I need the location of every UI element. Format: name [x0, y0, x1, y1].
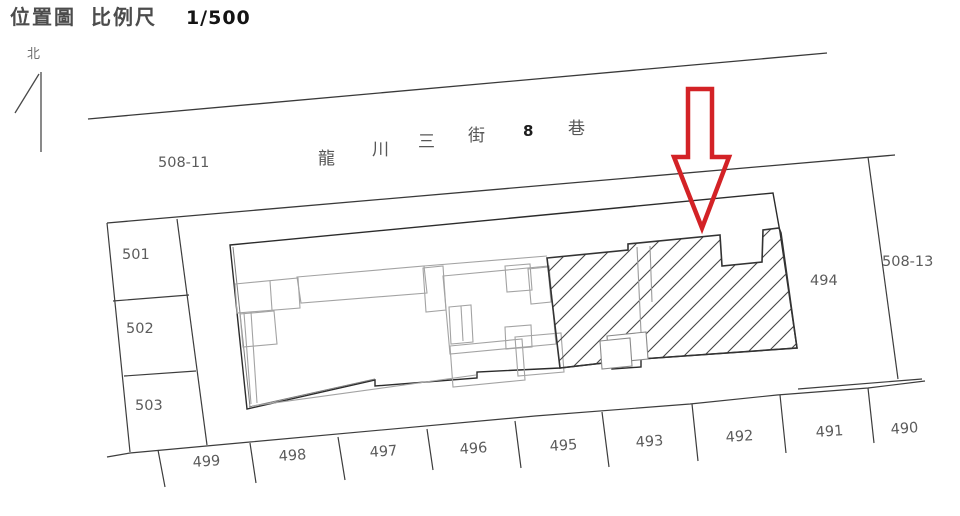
parcel-label-498: 498: [278, 447, 307, 465]
building-band: [297, 266, 427, 303]
parcel-label-490: 490: [890, 420, 919, 438]
building-line: [461, 306, 463, 341]
parcel-label-501: 501: [122, 247, 150, 263]
parcel-label-491: 491: [815, 423, 844, 441]
street-name: 龍 川 三 街 8 巷 508-11: [158, 119, 585, 171]
street-name-char-4: 街: [468, 126, 485, 146]
location-map: 位置圖 比例尺 1/500 北 龍 川 三 街 8 巷 508-11: [0, 0, 960, 516]
parcel-labels: 501 502 503 494 508-13 499 498 497 496 4…: [122, 247, 933, 471]
parcel-label-508-13: 508-13: [882, 254, 933, 270]
parcel-label-492: 492: [725, 428, 754, 446]
street-name-char-1: 龍: [318, 149, 335, 169]
parcel-label-495: 495: [549, 437, 578, 455]
street-top-line: [88, 53, 827, 119]
site-plan-canvas: 北 龍 川 三 街 8 巷 508-11: [0, 0, 960, 516]
parcel-label-503: 503: [135, 398, 163, 414]
building-rect: [600, 338, 632, 369]
highlighted-parcel-hatch: [547, 228, 797, 368]
left-column-separator: [177, 219, 207, 445]
north-arrow-lines: [15, 72, 41, 152]
highlight-arrow: [674, 89, 729, 228]
street-name-char-2: 川: [372, 140, 389, 160]
bottom-row-top-line: [107, 381, 925, 457]
building-line: [244, 312, 257, 404]
north-label: 北: [27, 47, 40, 62]
parcel-label-497: 497: [369, 443, 398, 461]
building-line: [252, 375, 476, 406]
parcel-label-496: 496: [459, 440, 488, 458]
building-rect: [235, 278, 300, 313]
parcel-label-494: 494: [810, 273, 838, 289]
street-name-char-6: 巷: [568, 119, 585, 139]
parcel-label-502: 502: [126, 321, 154, 337]
parcel-label-493: 493: [635, 433, 664, 451]
street-name-char-3: 三: [418, 132, 435, 152]
lot-inner-edge: [233, 247, 375, 407]
street-name-char-5: 8: [523, 122, 533, 140]
parcel-label-499: 499: [192, 453, 221, 471]
parcel-label-508-11: 508-11: [158, 155, 209, 171]
north-arrow: 北: [15, 47, 41, 152]
parcel-boundaries: [107, 157, 925, 487]
building-line: [270, 281, 272, 310]
